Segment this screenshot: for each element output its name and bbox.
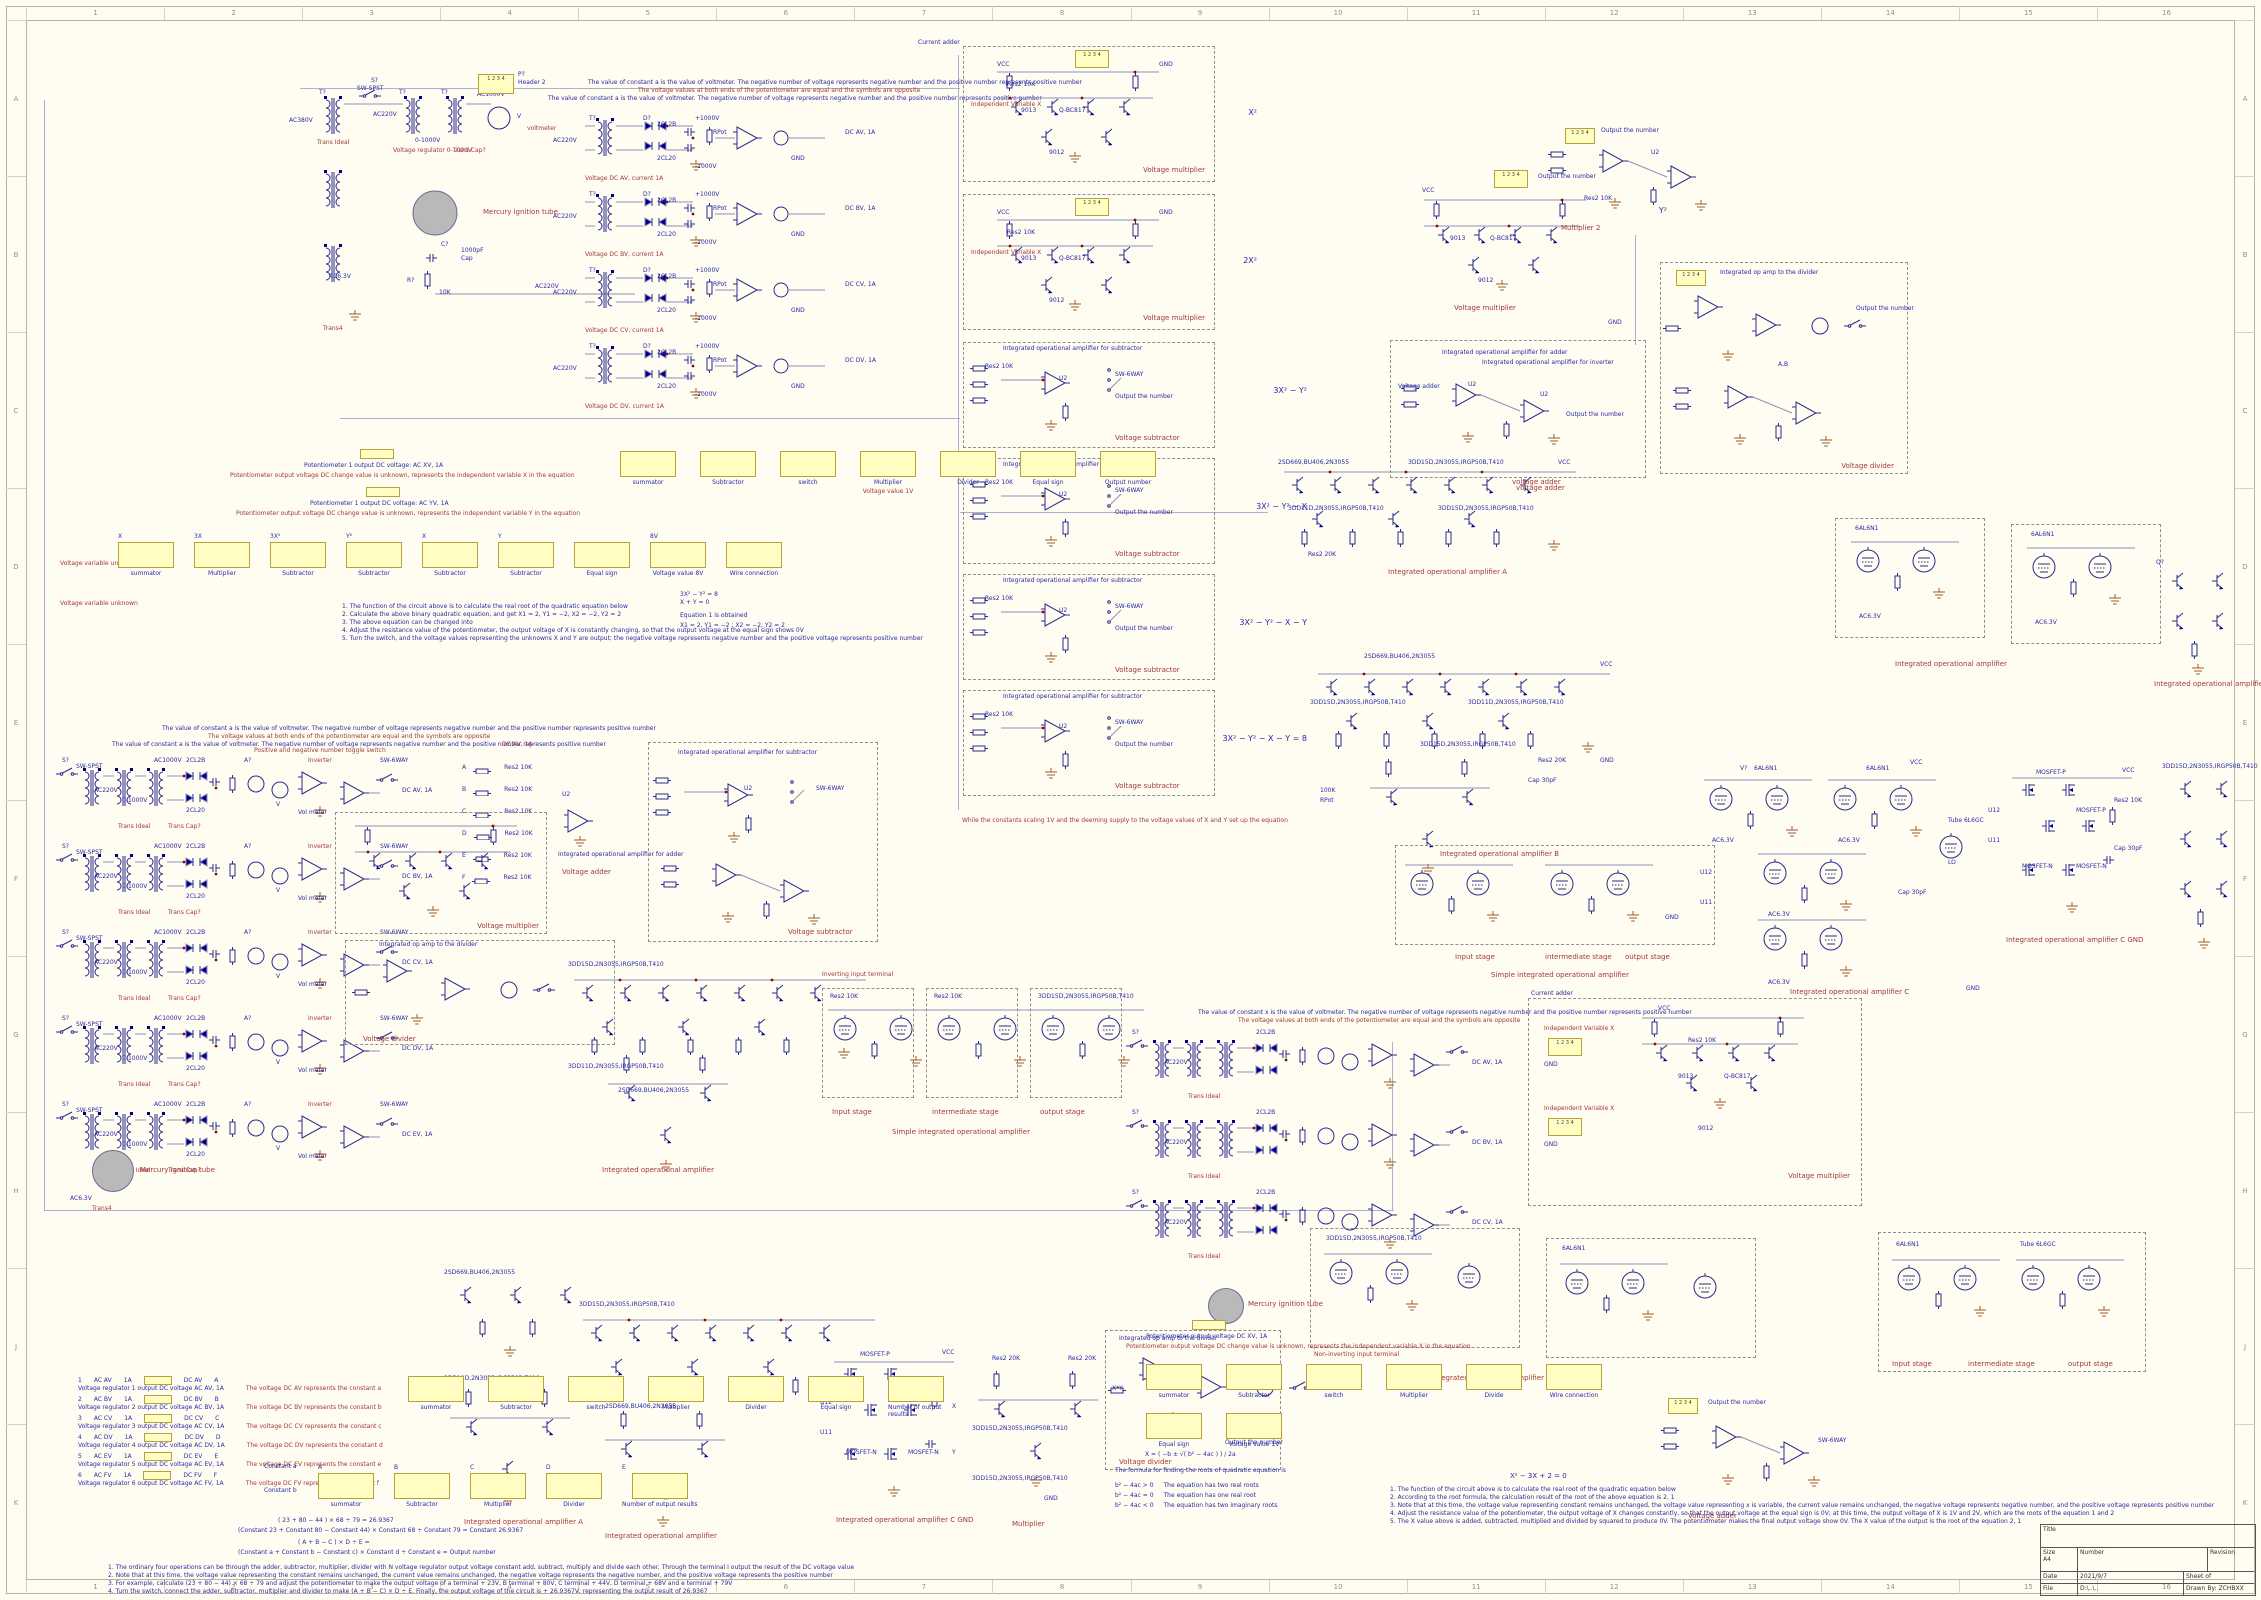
symbol-box[interactable] — [488, 1376, 544, 1402]
heater-label: AC6.3V — [2035, 620, 2057, 627]
symbol-box[interactable] — [648, 1376, 704, 1402]
header-pins: 3 4 — [497, 76, 505, 82]
symbol-box[interactable] — [888, 1376, 944, 1402]
flow-box[interactable] — [318, 1473, 374, 1499]
dc-label: DC BV — [184, 1396, 203, 1403]
voltmeter-letter: V — [276, 802, 280, 809]
flow-box[interactable] — [422, 542, 478, 568]
zone-label: 13 — [1683, 6, 1821, 20]
res-label: Res2 10K — [985, 596, 1013, 603]
res-label: Res2 10K — [1007, 230, 1035, 237]
tube-stage-box[interactable]: 6AL6N1 AC6.3V — [1835, 518, 1985, 638]
dc-output-label: DC DV, 1A — [402, 1046, 433, 1053]
header-pins: 3 4 — [1692, 272, 1700, 278]
tube-stage-box[interactable]: Res2 10K — [926, 988, 1018, 1098]
res-label: Res2 10K — [504, 764, 532, 771]
symbol-label: summator — [633, 479, 664, 486]
sheet-cell: Sheet of — [2183, 1571, 2254, 1583]
module-tube-stage-upper-right[interactable]: 6AL6N1 AC6.3V 6AL6N1 AC6.3V Integrated o… — [1835, 518, 2167, 668]
symbol-box[interactable] — [620, 451, 676, 477]
note-line: The voltage values at both ends of the p… — [1238, 1018, 1520, 1025]
transistor-parts: 3DD15D,2N3055,IRGP50B,T410 — [1438, 506, 1534, 513]
mercury-tube[interactable] — [92, 1150, 134, 1192]
flow-box[interactable] — [498, 542, 554, 568]
transformer-ref: T? — [589, 192, 596, 199]
switch-label: SW-6WAY — [1115, 604, 1143, 611]
legend-symbol: Wire connection — [1546, 1364, 1602, 1399]
voltage-multiplier-box[interactable]: 1 2 3 4 VCC GND Independent Variable X 9… — [963, 194, 1215, 330]
case-condition: b² − 4ac > 0 — [1115, 1482, 1154, 1489]
gnd-label: GND — [1608, 320, 1622, 327]
ac220-label: AC220V — [553, 290, 577, 297]
tube-stage-box[interactable]: 6AL6N1 AC6.3V — [2011, 524, 2161, 644]
flow-box[interactable] — [270, 542, 326, 568]
adder-opamp[interactable] — [558, 802, 618, 842]
constant-desc: The voltage DC AV represents the constan… — [246, 1385, 381, 1392]
dc-output-label: DC BV, 1A — [845, 206, 876, 213]
symbol-label: summator — [421, 1404, 452, 1411]
header-chip[interactable]: 1 2 3 4 — [1548, 1118, 1582, 1136]
mercury-tube[interactable] — [1208, 1288, 1244, 1324]
res-glyph[interactable] — [472, 760, 498, 774]
plus1000-label: +1000V — [695, 116, 719, 123]
tube-pair[interactable] — [1758, 918, 1870, 982]
flow-label: Divider — [563, 1501, 584, 1508]
ammeter-ref: A? — [244, 1016, 251, 1023]
module-current-adder-box[interactable]: 1 2 3 4 1 2 3 4 Independent Variable X I… — [1528, 998, 1862, 1206]
selector-row[interactable]: A Res2 10K — [462, 756, 533, 778]
transistor-cluster-circuit[interactable] — [440, 1278, 590, 1358]
flow-box[interactable] — [346, 542, 402, 568]
transistor-column-circuit[interactable] — [2152, 564, 2252, 674]
intermediate-stage-caption: intermediate stage — [1968, 1360, 2035, 1368]
vcc-label: VCC — [1558, 460, 1570, 467]
transistor-parts: 3DD11D,2N3055,IRGP50B,T410 — [1468, 700, 1564, 707]
diode-ref: D? — [643, 192, 651, 199]
legend-note: 1. The function of the circuit above is … — [342, 603, 923, 610]
range-label: 0-1000V — [122, 884, 147, 891]
heater-label: AC6.3V — [1859, 614, 1881, 621]
plus1000-label: +1000V — [695, 344, 719, 351]
revision-label: Revision — [2210, 1549, 2235, 1556]
module-tube-bottom-right[interactable]: 6AL6N1 Tube 6L6GC Input stage intermedia… — [1878, 1232, 2146, 1372]
header-chip[interactable]: 1 2 3 4 — [1075, 198, 1109, 216]
flow-box[interactable] — [194, 542, 250, 568]
header-pins: 1 2 — [1682, 272, 1690, 278]
case-condition: b² − 4ac = 0 — [1115, 1492, 1154, 1499]
symbol-label: Output number — [1105, 479, 1151, 486]
flow-item: Y Subtractor — [498, 533, 554, 577]
dc-output-label: DC CV, 1A — [845, 282, 876, 289]
flow-pre-label: X — [422, 533, 426, 540]
symbol-box[interactable] — [700, 451, 756, 477]
amp-label: 1A — [124, 1415, 132, 1422]
header-ref: P? — [518, 72, 525, 79]
cap-value: 1000pF — [461, 248, 484, 255]
legend-symbol: Output number — [1100, 451, 1156, 488]
row-number: 5 — [78, 1453, 82, 1460]
divider-circuit-2[interactable] — [1680, 378, 1870, 452]
row-caption: Voltage DC AV, current 1A — [585, 176, 663, 183]
ammeter-ref: A? — [244, 844, 251, 851]
voltage-multiplier-circuit[interactable] — [1628, 1014, 1828, 1114]
diode-type: 2CL20 — [657, 232, 676, 239]
symbol-label: switch — [1324, 1392, 1343, 1399]
output-number-label: Output the number — [1115, 394, 1173, 401]
zone-label: J — [2235, 1268, 2255, 1424]
simple-opamp-caption: Simple integrated operational amplifier — [1491, 971, 1629, 979]
symbol-box[interactable] — [1306, 1364, 1362, 1390]
module-tube-trio-2[interactable]: GND Input stage intermediate stage outpu… — [1395, 845, 1725, 1005]
tube-pair[interactable] — [1036, 1008, 1116, 1068]
flow-box[interactable] — [470, 1473, 526, 1499]
case-result: The equation has one real root — [1164, 1492, 1256, 1499]
opamp-ref: U2 — [1059, 376, 1067, 383]
zone-label: 14 — [1821, 6, 1959, 20]
symbol-box[interactable] — [940, 451, 996, 477]
flow-pre-label: A — [318, 1464, 322, 1471]
flow-input-label: Constant a — [264, 1464, 297, 1471]
psu-row-circuit[interactable] — [1128, 1038, 1508, 1102]
transistor-opamp-circuit-2[interactable] — [598, 1054, 748, 1174]
flow-item: B Subtractor — [394, 1464, 450, 1508]
inverter-caption: Inverter — [308, 758, 332, 765]
gnd-label: GND — [791, 156, 805, 163]
heater-label: AC6.3V — [70, 1196, 92, 1203]
opamp-ref: U2 — [1468, 382, 1476, 389]
multiplier2-circuit[interactable] — [1555, 142, 1705, 222]
tube-pair[interactable] — [1828, 778, 1940, 842]
ac1000-label: AC1000V — [154, 758, 182, 765]
symbol-label: switch — [586, 1404, 605, 1411]
output-number-label: Output the number — [1115, 510, 1173, 517]
trans-ideal-caption: Trans Ideal — [118, 1082, 150, 1089]
constant-letter: E — [214, 1453, 218, 1460]
transistor-parts: 3DD15D,2N3055,IRGP50B,T410 — [579, 1302, 675, 1309]
transistor-type: Q-BC817 — [1490, 236, 1517, 243]
constant-desc: The voltage DC BV represents the constan… — [246, 1404, 381, 1411]
cap-label: Cap 30pF — [1898, 890, 1926, 897]
pot-label: RPot — [713, 206, 727, 213]
module-multiplier-column[interactable]: 1 2 3 4 VCC GND Independent Variable X 9… — [963, 46, 1219, 810]
potentiometer-chip[interactable] — [1192, 1320, 1226, 1330]
voltage-multiplier-circuit[interactable] — [341, 822, 541, 922]
note-line: The voltage values at both ends of the p… — [208, 734, 490, 741]
ac220-label: AC220V — [94, 788, 118, 795]
zone-label: A — [6, 20, 26, 176]
legend-symbol: Equal sign — [808, 1376, 864, 1411]
symbol-box[interactable] — [1226, 1413, 1282, 1439]
header-chip[interactable]: 1 2 3 4 — [1075, 50, 1109, 68]
symbol-box[interactable] — [1546, 1364, 1602, 1390]
regulator-chip[interactable] — [144, 1452, 172, 1461]
module-mid-voltage-multiplier[interactable]: Voltage multiplier — [335, 812, 547, 934]
zone-label: C — [6, 332, 26, 488]
flow-pre-label: 3X² — [270, 533, 280, 540]
ac220-label: AC220V — [1164, 1220, 1188, 1227]
switch-type: SW-SPST — [76, 936, 103, 943]
regulator-desc: Voltage regulator 2 output DC voltage AC… — [78, 1404, 224, 1411]
tube-pair[interactable] — [1851, 540, 1963, 604]
zone-label: F — [6, 800, 26, 956]
sheet-label: Sheet — [2186, 1573, 2203, 1580]
rectifier-row[interactable]: T? AC220V D? 2CL2B 2CL20 +1000V -1000V R… — [545, 268, 975, 344]
diode-ref: D? — [643, 116, 651, 123]
pot-y-line: Potentiometer 1 output DC voltage: AC YV… — [310, 501, 449, 508]
flow-box[interactable] — [118, 542, 174, 568]
symbol-box[interactable] — [780, 451, 836, 477]
flow-box[interactable] — [394, 1473, 450, 1499]
regulator-chip[interactable] — [144, 1395, 172, 1404]
symbol-box[interactable] — [1466, 1364, 1522, 1390]
module-transistor-opamp-b[interactable]: 2SD669,BU406,2N3055 3DD15D,2N3055,IRGP50… — [1300, 638, 1640, 866]
res-label: Res2 10K — [934, 994, 962, 1001]
drawn-by-value: ZCHBXX — [2219, 1585, 2244, 1592]
transistor-column-circuit[interactable] — [2162, 772, 2252, 952]
output-tube[interactable] — [1450, 1258, 1510, 1318]
regulator-chip[interactable] — [143, 1471, 171, 1480]
zone-label: 10 — [1269, 1580, 1407, 1594]
header-chip[interactable]: 1 2 3 4 — [1548, 1038, 1582, 1056]
divider-circuit[interactable] — [359, 952, 589, 1036]
tube-pair[interactable] — [1892, 1258, 2004, 1322]
header-pins: 3 4 — [1566, 1120, 1574, 1126]
number-cell: Number — [2077, 1547, 2207, 1571]
regulator-desc: Voltage regulator 3 output DC voltage AC… — [78, 1423, 224, 1430]
tube-pair[interactable] — [828, 1008, 908, 1068]
flow-box[interactable] — [726, 542, 782, 568]
output-number-label: Output the number — [1115, 626, 1173, 633]
transistor-opamp-circuit[interactable] — [566, 974, 806, 1066]
header-pins: 3 4 — [1093, 200, 1101, 206]
flow-pre-label: B — [394, 1464, 398, 1471]
ac220-label: AC220V — [553, 366, 577, 373]
symbol-box[interactable] — [728, 1376, 784, 1402]
output-number-label: Output the number — [1115, 742, 1173, 749]
while-equation-note: While the constants scaling 1V and the d… — [962, 818, 1288, 825]
tube-stage-box[interactable]: GND — [1395, 845, 1715, 945]
ac220-label: AC220V — [553, 214, 577, 221]
opamp-ref: U2 — [744, 786, 752, 793]
tube-pair[interactable] — [1560, 1262, 1672, 1326]
header-chip[interactable]: 1 2 3 4 — [1565, 128, 1595, 144]
dc-output-label: DC EV, 1A — [402, 1132, 432, 1139]
tube-pair[interactable] — [2027, 546, 2139, 610]
transformer-ref: T? — [589, 268, 596, 275]
regulator-chip[interactable] — [144, 1376, 172, 1385]
symbol-box[interactable] — [1100, 451, 1156, 477]
header-chip[interactable]: 1 2 3 4 — [478, 74, 514, 94]
module-mid-subtractor[interactable]: Integrated operational amplifier for sub… — [648, 742, 878, 942]
diode-type: 2CL2B — [657, 350, 676, 357]
subtractor-box[interactable]: Integrated operational amplifier for sub… — [963, 690, 1215, 796]
res-label: Res2 10K — [1007, 82, 1035, 89]
tube-pair[interactable] — [1324, 1252, 1436, 1316]
inverter-caption: Inverter — [308, 930, 332, 937]
number-label: Number — [2080, 1549, 2104, 1556]
header-chip[interactable]: 1 2 3 4 — [1494, 170, 1528, 188]
row-caption: Voltage DC CV, current 1A — [585, 328, 664, 335]
file-value-cell: D:\..\.. — [2077, 1583, 2183, 1595]
res-label: Res2 20K — [1308, 552, 1336, 559]
opamp-ref: U2 — [1059, 608, 1067, 615]
zone-label: 8 — [992, 1580, 1130, 1594]
dc-output-label: DC AV, 1A — [845, 130, 875, 137]
subtractor-box[interactable]: Integrated operational amplifier for sub… — [963, 574, 1215, 680]
psu-row[interactable]: S? AC220V 2CL2B DC BV, 1A Trans Ideal — [1128, 1110, 1528, 1190]
transistor-type: 9013 — [1450, 236, 1465, 243]
independent-variable-label: Independent Variable X — [1544, 1106, 1614, 1113]
switch-label: SW-6WAY — [816, 786, 844, 793]
output-number-label: Output the number — [1708, 1400, 1766, 1407]
module-voltage-divider-topright[interactable]: 1 2 3 4 Integrated op amp to the divider… — [1660, 262, 1908, 474]
symbol-label: Equal sign — [1032, 479, 1063, 486]
subtractor-circuit[interactable] — [660, 766, 870, 852]
potentiometer-chip[interactable] — [366, 487, 400, 497]
rectifier-row[interactable]: T? AC220V D? 2CL2B 2CL20 +1000V -1000V R… — [545, 344, 975, 420]
regulator-chip[interactable] — [144, 1414, 172, 1423]
inverting-terminal-label: Inverting input terminal — [822, 972, 893, 979]
heater-label: AC6.3V — [1712, 838, 1734, 845]
module-tube-trio-mid[interactable]: Inverting input terminal Res2 10K Res2 1… — [822, 982, 1124, 1182]
flow-box[interactable] — [650, 542, 706, 568]
potentiometer-chip[interactable] — [360, 449, 394, 459]
tube-pair[interactable] — [1704, 778, 1816, 842]
output-tube[interactable] — [1686, 1268, 1746, 1328]
module-multiplier-2[interactable]: 1 2 3 4 Output the number Multiplier 2 U… — [1555, 128, 1705, 232]
selector-row[interactable]: B Res2 10K — [462, 778, 533, 800]
psu-row-circuit[interactable] — [1128, 1118, 1508, 1182]
tube-pair[interactable] — [1405, 863, 1517, 927]
tube-pair[interactable] — [1758, 852, 1870, 916]
module-tube-opamp-c[interactable]: V? 6AL6N1 6AL6N1 Tube 6L6GC AC6.3V AC6.3… — [1698, 760, 2004, 994]
header-chip[interactable]: 1 2 3 4 — [1676, 270, 1706, 286]
legend-row: 4 AC DV 1A DC DV D Voltage regulator 4 o… — [78, 1433, 383, 1449]
symbol-box[interactable] — [860, 451, 916, 477]
zone-label: J — [6, 1268, 26, 1424]
symbol-label: Number of output results — [888, 1404, 944, 1418]
flow-box[interactable] — [546, 1473, 602, 1499]
amplifier-caption: Integrated operational amplifier — [2154, 680, 2261, 688]
subtractor-box[interactable]: Integrated operational amplifier for sub… — [963, 342, 1215, 448]
sheet-zone-columns-top: 12345678910111213141516 — [26, 6, 2235, 20]
module-small-cluster-1[interactable]: 2SD669,BU406,2N3055 — [440, 1270, 592, 1366]
date-value: 2021/9/7 — [2080, 1573, 2107, 1580]
res-label: Res2 10K — [985, 364, 1013, 371]
module-mosfet-opamp-c[interactable]: MOSFET-P MOSFET-P MOSFET-N MOSFET-N Res2… — [2002, 768, 2154, 944]
symbol-box[interactable] — [1146, 1413, 1202, 1439]
legend-four-operations: 1 AC AV 1A DC AV A Voltage regulator 1 o… — [78, 1376, 698, 1596]
mosfet-type: MOSFET-N — [908, 1450, 939, 1457]
adder-circuit[interactable] — [668, 856, 858, 930]
pot-label: RPot — [713, 130, 727, 137]
switch-type: SW-SPST — [76, 1022, 103, 1029]
zone-label: 10 — [1269, 6, 1407, 20]
symbol-box[interactable] — [1020, 451, 1076, 477]
voltmeter-letter: V — [517, 114, 521, 121]
module-rectifier-array-top[interactable]: T? AC220V D? 2CL2B 2CL20 +1000V -1000V R… — [545, 116, 975, 426]
transistor-ref: Q? — [2156, 560, 2164, 567]
module-right-column-1[interactable]: Q? Integrated operational amplifier — [2152, 560, 2252, 678]
subtractor-title: Integrated operational amplifier for sub… — [1003, 694, 1142, 701]
symbol-box[interactable] — [808, 1376, 864, 1402]
module-right-column-2[interactable]: 3DD15D,2N3055,IRGP50B,T410 — [2162, 772, 2254, 962]
dc-label: DC DV — [184, 1434, 203, 1441]
symbol-label: Equal sign — [1158, 1441, 1189, 1448]
divider-circuit[interactable] — [1670, 288, 1900, 372]
switch-ref: S? — [371, 78, 378, 85]
flow-box[interactable] — [574, 542, 630, 568]
ac220-label: AC220V — [373, 112, 397, 119]
module-transistor-opamp-a[interactable]: 2SD669,BU406,2N3055 3DD15D,2N3055,IRGP50… — [1268, 460, 1616, 572]
flow-box[interactable] — [632, 1473, 688, 1499]
switch-ref: S? — [62, 1102, 69, 1109]
rectifier-row[interactable]: T? AC220V D? 2CL2B 2CL20 +1000V -1000V R… — [545, 192, 975, 268]
res-glyph[interactable] — [472, 782, 498, 796]
legend-note: 1. The function of the circuit above is … — [1390, 1486, 2214, 1493]
zone-label: 9 — [1131, 1580, 1269, 1594]
legend-symbol: summator — [408, 1376, 464, 1411]
regulator-desc: Voltage regulator 4 output DC voltage AC… — [78, 1442, 225, 1449]
legend-note: 4. Adjust the resistance value of the po… — [342, 627, 923, 634]
zone-label: 6 — [716, 6, 854, 20]
module-mid-transistor-cluster[interactable]: 3DD15D,2N3055,IRGP50B,T410 3DD11D,2N3055… — [558, 958, 816, 1176]
psu-row[interactable]: S? AC220V 2CL2B DC AV, 1A Trans Ideal — [1128, 1030, 1528, 1110]
symbol-box[interactable] — [568, 1376, 624, 1402]
symbol-box[interactable] — [1146, 1364, 1202, 1390]
legend-note: 4. Turn the switch, connect the adder, s… — [108, 1588, 854, 1595]
channel-letter: B — [462, 786, 466, 793]
module-adder-inverter[interactable]: Integrated operational amplifier for add… — [1390, 340, 1646, 478]
mosfet-type: MOSFET-P — [2076, 808, 2106, 815]
pot-desc: Potentiometer output voltage DC change v… — [1126, 1344, 1471, 1351]
tube-type: 6AL6N1 — [1855, 526, 1878, 533]
tube-pair[interactable] — [932, 1008, 1012, 1068]
formula-case: b² − 4ac > 0 The equation has two real r… — [1115, 1482, 1278, 1489]
flow-item: 3X² Subtractor — [270, 533, 326, 577]
symbol-box[interactable] — [1226, 1364, 1282, 1390]
constant-letter: B — [215, 1396, 219, 1403]
tube-pair[interactable] — [2016, 1258, 2128, 1322]
zone-label: 2 — [164, 6, 302, 20]
tube-stage-box[interactable]: 3DD15D,2N3055,IRGP50B,T410 — [1030, 988, 1122, 1098]
legend-note: 5. Turn the switch, and the voltage valu… — [342, 635, 923, 642]
plus1000-label: +1000V — [695, 268, 719, 275]
tube-pair[interactable] — [1545, 863, 1657, 927]
independent-variable-label: Independent Variable X — [1544, 1026, 1614, 1033]
equation-annotation: 2X² — [1243, 256, 1257, 265]
formula-case: b² − 4ac < 0 The equation has two imagin… — [1115, 1502, 1278, 1509]
voltage-multiplier-box[interactable]: 1 2 3 4 VCC GND Independent Variable X 9… — [963, 46, 1215, 182]
amp-label: 1A — [124, 1377, 132, 1384]
header-label: Header 2 — [518, 80, 546, 87]
legend-symbol: switch — [568, 1376, 624, 1411]
pot-value: 100K — [1320, 788, 1335, 795]
range-label: 0-1000V — [122, 1142, 147, 1149]
symbol-box[interactable] — [408, 1376, 464, 1402]
size-label: Size — [2043, 1549, 2055, 1556]
constant-desc: The voltage DC CV represents the constan… — [246, 1423, 381, 1430]
rectifier-row[interactable]: T? AC220V D? 2CL2B 2CL20 +1000V -1000V R… — [545, 116, 975, 192]
switch-label: SW-6WAY — [380, 758, 408, 765]
symbol-box[interactable] — [1386, 1364, 1442, 1390]
subtractor-title: Integrated operational amplifier for sub… — [678, 750, 817, 757]
subtractor-title: Integrated operational amplifier for sub… — [1003, 578, 1142, 585]
range-label: 0-1000V — [415, 138, 440, 145]
regulator-chip[interactable] — [144, 1433, 172, 1442]
tube-stage-box[interactable]: Res2 10K — [822, 988, 914, 1098]
zone-label: 3 — [302, 6, 440, 20]
